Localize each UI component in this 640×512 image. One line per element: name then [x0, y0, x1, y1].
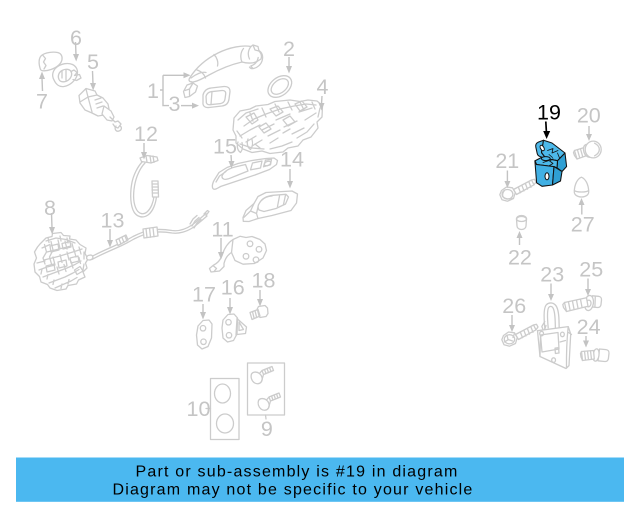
svg-text:18: 18: [252, 269, 276, 293]
svg-text:Part or sub-assembly is #19 in: Part or sub-assembly is #19 in diagram: [135, 464, 458, 481]
svg-text:9: 9: [261, 417, 273, 441]
svg-text:1: 1: [147, 79, 159, 103]
svg-text:15: 15: [213, 135, 237, 159]
svg-text:26: 26: [502, 294, 526, 318]
svg-text:16: 16: [221, 275, 245, 299]
svg-text:4: 4: [317, 75, 329, 99]
svg-text:8: 8: [44, 196, 56, 220]
svg-text:23: 23: [540, 262, 564, 286]
svg-text:22: 22: [508, 246, 532, 270]
svg-text:5: 5: [87, 50, 99, 74]
svg-text:6: 6: [70, 26, 82, 50]
svg-text:19: 19: [537, 100, 561, 124]
svg-text:13: 13: [101, 209, 125, 233]
svg-text:20: 20: [577, 103, 601, 127]
svg-text:2: 2: [283, 37, 295, 61]
svg-text:14: 14: [280, 148, 304, 172]
svg-text:3: 3: [169, 92, 181, 116]
svg-text:17: 17: [192, 282, 216, 306]
svg-text:7: 7: [36, 90, 48, 114]
svg-text:21: 21: [495, 149, 519, 173]
svg-text:10: 10: [187, 397, 211, 421]
svg-text:27: 27: [571, 213, 595, 237]
svg-text:24: 24: [577, 315, 601, 339]
svg-text:11: 11: [211, 217, 233, 241]
svg-text:Diagram may not be specific to: Diagram may not be specific to your vehi…: [112, 482, 473, 499]
svg-text:12: 12: [134, 122, 158, 146]
svg-text:25: 25: [579, 257, 603, 281]
